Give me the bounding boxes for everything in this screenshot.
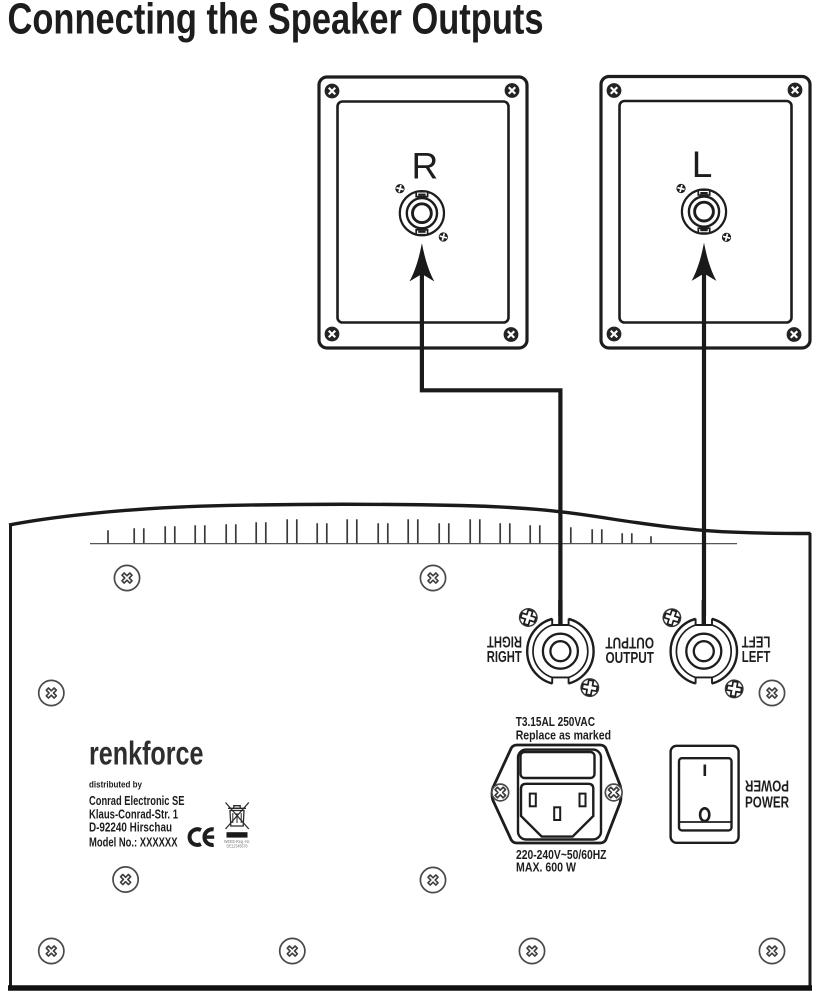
svg-text:POWER: POWER bbox=[745, 795, 789, 812]
svg-text:DE12345678: DE12345678 bbox=[227, 844, 248, 849]
svg-text:LEFT: LEFT bbox=[741, 632, 770, 649]
svg-text:distributed by: distributed by bbox=[89, 780, 143, 791]
svg-text:L: L bbox=[692, 144, 713, 185]
svg-text:R: R bbox=[412, 146, 439, 187]
svg-text:RIGHT: RIGHT bbox=[487, 632, 522, 649]
svg-text:OUTPUT: OUTPUT bbox=[605, 650, 654, 667]
svg-text:OUTPUT: OUTPUT bbox=[605, 633, 654, 650]
svg-text:Connecting the Speaker Outputs: Connecting the Speaker Outputs bbox=[8, 0, 544, 44]
svg-text:D-92240 Hirschau: D-92240 Hirschau bbox=[89, 821, 172, 835]
svg-text:Model No.: XXXXXX: Model No.: XXXXXX bbox=[89, 835, 178, 850]
svg-text:RIGHT: RIGHT bbox=[487, 649, 522, 666]
svg-text:Conrad Electronic SE: Conrad Electronic SE bbox=[89, 794, 185, 808]
svg-text:Replace as marked: Replace as marked bbox=[516, 728, 611, 743]
svg-text:POWER: POWER bbox=[745, 776, 789, 793]
svg-text:LEFT: LEFT bbox=[742, 649, 771, 666]
svg-text:renkforce: renkforce bbox=[89, 735, 204, 772]
svg-text:MAX. 600 W: MAX. 600 W bbox=[516, 860, 577, 875]
svg-text:Klaus-Conrad-Str. 1: Klaus-Conrad-Str. 1 bbox=[89, 808, 178, 822]
